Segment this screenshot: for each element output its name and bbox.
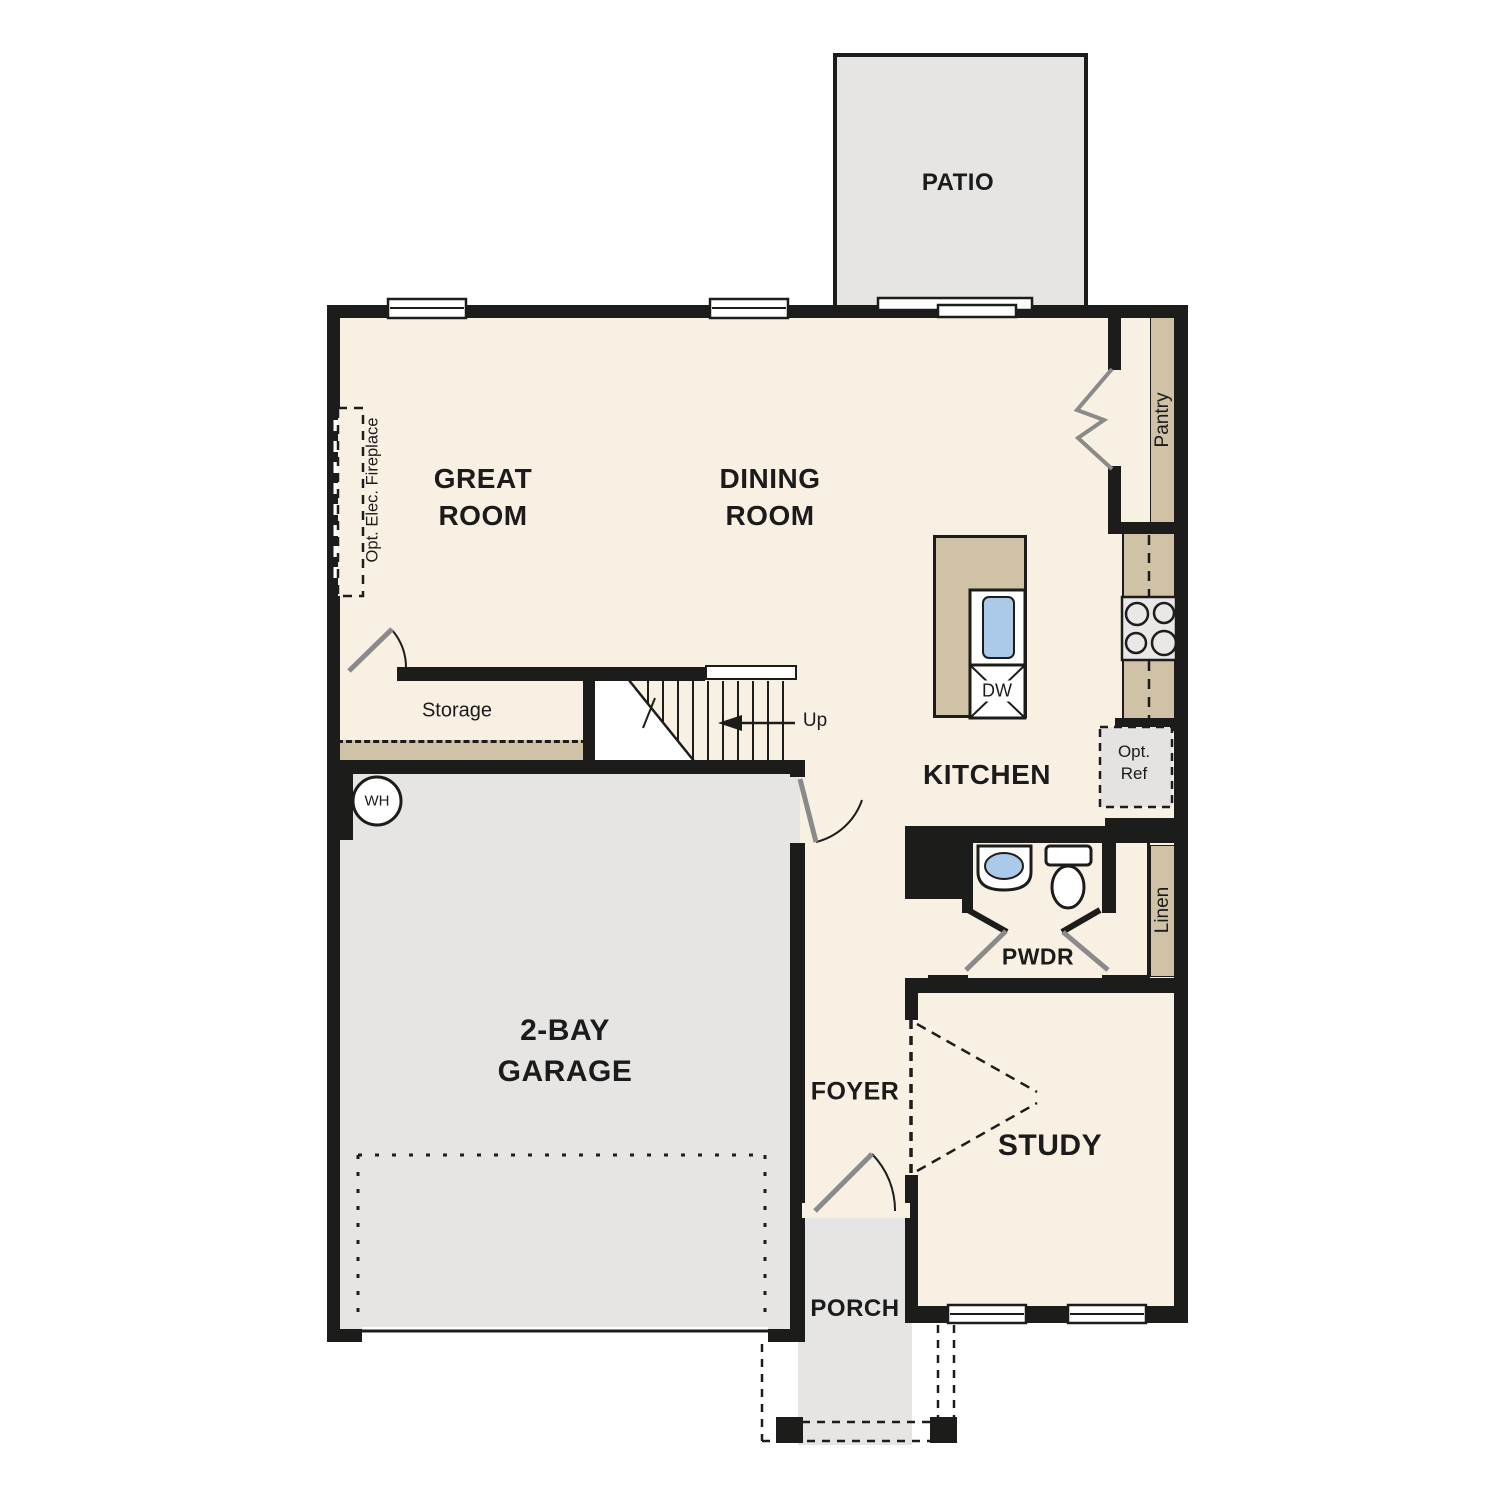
kitchen-island-sink <box>970 590 1025 665</box>
up-label: Up <box>803 710 827 732</box>
garage-entry-door <box>800 779 862 842</box>
pantry-label: Pantry <box>1152 393 1174 448</box>
study-window-left <box>948 1305 1026 1323</box>
patio-sliding-door <box>878 298 1032 317</box>
porch-roof-outline <box>762 1325 957 1443</box>
study-label: STUDY <box>998 1129 1102 1163</box>
opt-ref-label: Opt. Ref <box>1109 741 1159 785</box>
opt-elec-fireplace-box <box>337 408 363 596</box>
floor-plan-canvas: PATIO GREAT ROOM DINING ROOM KITCHEN 2-B… <box>0 0 1500 1500</box>
wh-label: WH <box>365 793 390 810</box>
garage-overhead-door <box>358 1155 768 1331</box>
porch-post-left <box>776 1417 803 1443</box>
porch-post-right <box>930 1417 957 1443</box>
front-door <box>815 1154 895 1211</box>
kitchen-label: KITCHEN <box>923 759 1051 791</box>
great-room-label: GREAT ROOM <box>418 460 548 534</box>
toilet <box>1046 846 1091 908</box>
storage-door <box>349 629 406 671</box>
garage-label: 2-BAY GARAGE <box>480 1010 650 1092</box>
pantry-bifold-door <box>1077 369 1112 469</box>
patio-label: PATIO <box>922 169 994 197</box>
stair-break-mask <box>595 681 694 760</box>
dw-label: DW <box>980 681 1014 702</box>
foyer-label: FOYER <box>811 1078 900 1107</box>
powder-sink <box>978 846 1031 890</box>
dining-room-label: DINING ROOM <box>700 460 840 534</box>
range-stove <box>1122 597 1176 660</box>
dining-room-window <box>710 299 788 318</box>
porch-label: PORCH <box>810 1295 899 1323</box>
plan-linework <box>0 0 1500 1500</box>
study-window-right <box>1068 1305 1146 1323</box>
opt-elec-fireplace-label: Opt. Elec. Fireplace <box>364 418 383 563</box>
storage-label: Storage <box>422 700 492 723</box>
pwdr-label: PWDR <box>1002 944 1074 971</box>
linen-label: Linen <box>1152 887 1174 934</box>
great-room-window <box>388 299 466 318</box>
stairs-up <box>595 679 795 761</box>
up-arrow-head <box>718 715 742 731</box>
